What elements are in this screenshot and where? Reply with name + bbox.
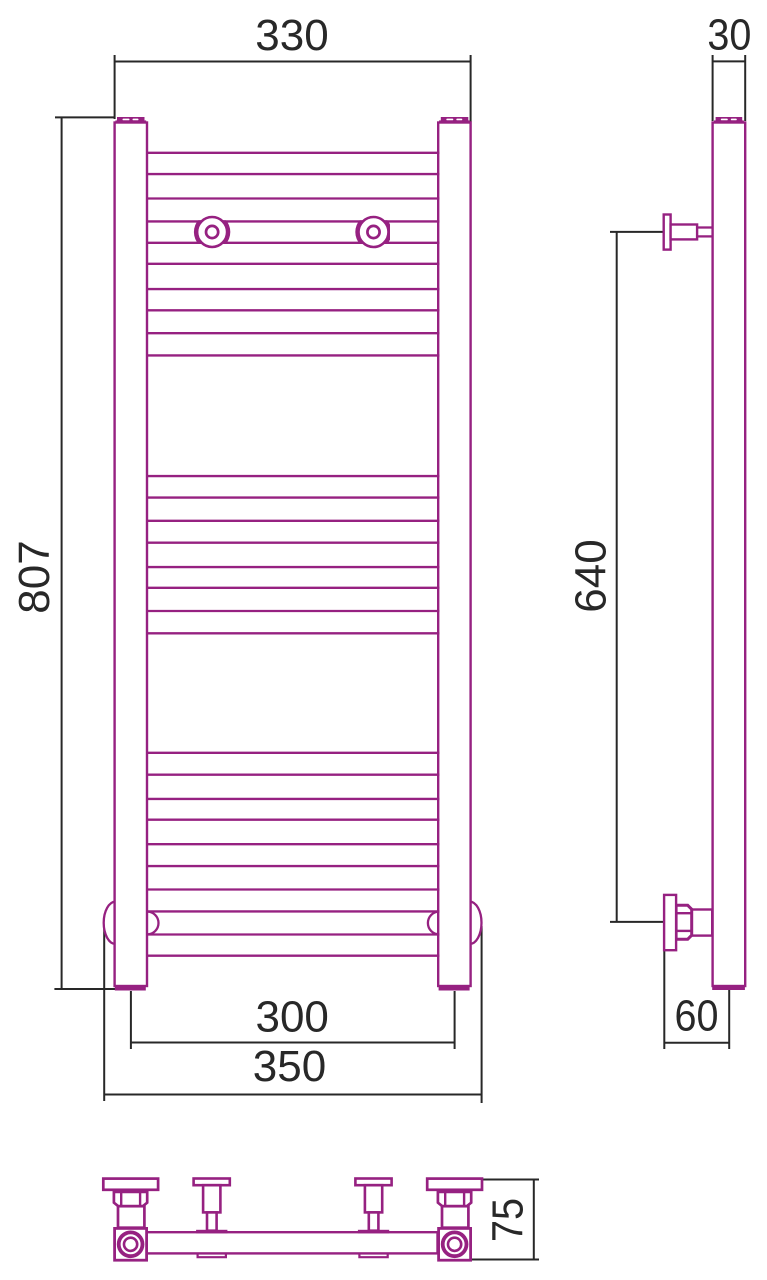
svg-text:60: 60 — [675, 992, 719, 1041]
svg-text:807: 807 — [10, 540, 59, 613]
svg-text:300: 300 — [255, 993, 328, 1042]
svg-text:30: 30 — [707, 11, 751, 60]
svg-text:330: 330 — [255, 11, 328, 60]
svg-text:75: 75 — [484, 1198, 533, 1242]
svg-text:350: 350 — [253, 1042, 326, 1091]
svg-text:640: 640 — [567, 539, 616, 612]
